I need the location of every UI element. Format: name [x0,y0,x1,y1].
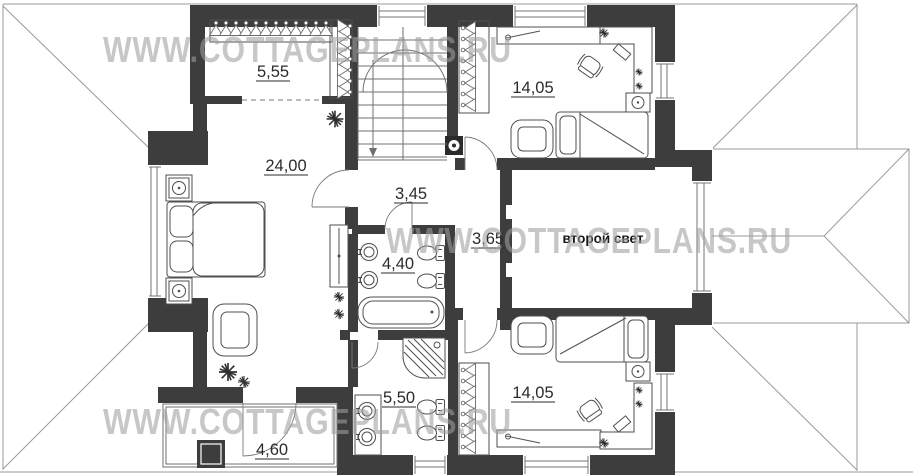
armchair-icon [213,304,257,356]
watermark-text: WWW.COTTAGEPLANS.RU [103,401,512,442]
plant-icon [599,28,609,38]
plant-icon [635,386,642,393]
plant-icon [635,68,642,75]
armchair-icon [511,120,553,158]
single-bed-icon [556,316,648,362]
nightstand [166,175,192,201]
double-bed-icon [167,202,265,277]
window-top-1 [377,5,427,27]
nightstand [626,93,650,112]
window-right-top [655,62,675,100]
plant-icon [599,438,609,448]
floor-plan-image: 5,55 24,00 14,05 3,45 3,65 4,40 второй с… [0,0,913,476]
room-label-bedroom-bottom: 14,05 [512,384,553,402]
window-bottom-2 [523,455,590,475]
single-bed-icon [556,112,648,158]
window-bay-master [148,165,162,298]
room-label-master-bedroom: 24,00 [265,157,306,175]
shower-icon [403,338,445,378]
window-bottom-1 [413,455,447,475]
plant-icon [635,82,642,89]
armchair-icon [511,316,553,354]
room-label-balcony: 4,60 [256,441,288,459]
toilet-icon [418,274,445,289]
room-label-bedroom-top: 14,05 [512,79,553,97]
window-top-2 [513,5,587,27]
nightstand [626,362,650,381]
watermark-text: WWW.COTTAGEPLANS.RU [103,29,512,70]
plant-icon [635,400,642,407]
desk [497,27,601,44]
nightstand [166,278,192,304]
window-right-bottom [655,372,675,412]
watermark-text: WWW.COTTAGEPLANS.RU [386,220,792,261]
desk [497,430,601,447]
tall-cabinet [330,225,348,287]
room-label-hall-upper: 3,45 [395,185,427,203]
bathtub-icon [358,297,444,328]
plant-icon [219,363,237,381]
